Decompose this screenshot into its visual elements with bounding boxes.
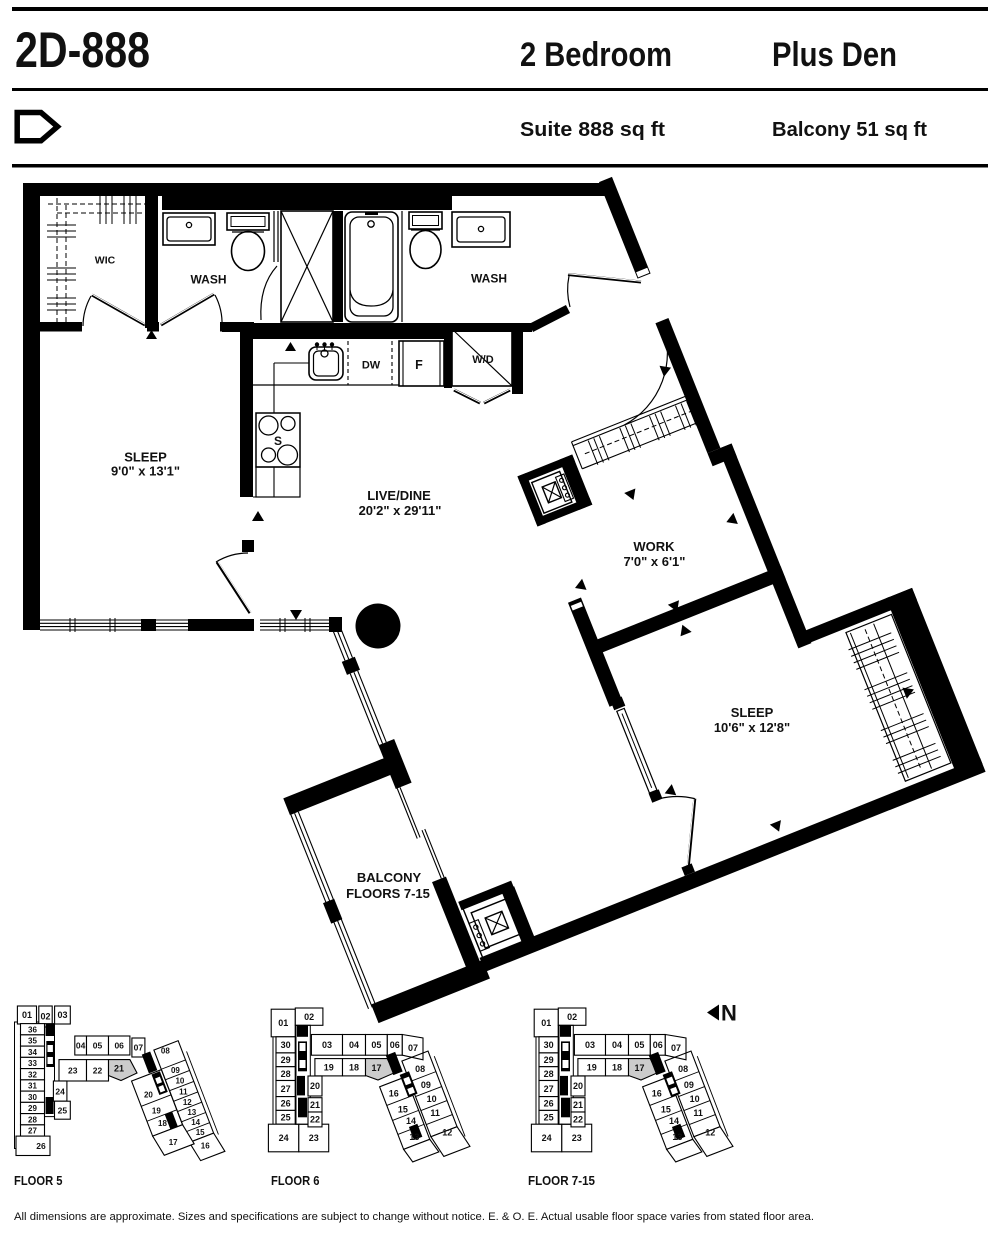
svg-text:06: 06 — [653, 1040, 663, 1050]
svg-text:15: 15 — [398, 1105, 408, 1115]
svg-text:34: 34 — [28, 1048, 37, 1057]
svg-text:18: 18 — [158, 1119, 167, 1128]
svg-text:16: 16 — [201, 1142, 210, 1151]
svg-text:26: 26 — [281, 1099, 291, 1109]
svg-text:Plus Den: Plus Den — [772, 36, 897, 74]
svg-text:28: 28 — [281, 1069, 291, 1079]
svg-text:25: 25 — [58, 1105, 68, 1115]
svg-text:20: 20 — [573, 1081, 583, 1091]
svg-text:24: 24 — [279, 1133, 289, 1143]
svg-text:30: 30 — [281, 1040, 291, 1050]
svg-text:19: 19 — [324, 1062, 334, 1072]
svg-text:22: 22 — [573, 1115, 583, 1125]
svg-text:32: 32 — [28, 1070, 37, 1079]
svg-text:All dimensions are approximate: All dimensions are approximate. Sizes an… — [14, 1211, 814, 1223]
svg-text:30: 30 — [544, 1040, 554, 1050]
svg-text:28: 28 — [544, 1069, 554, 1079]
svg-text:10: 10 — [690, 1094, 700, 1104]
svg-text:18: 18 — [349, 1062, 359, 1072]
svg-text:Suite 888 sq ft: Suite 888 sq ft — [520, 119, 665, 141]
svg-text:09: 09 — [171, 1066, 180, 1075]
svg-text:7'0" x 6'1": 7'0" x 6'1" — [624, 554, 686, 569]
svg-text:LIVE/DINE: LIVE/DINE — [367, 488, 431, 503]
svg-text:09: 09 — [421, 1080, 431, 1090]
svg-text:21: 21 — [573, 1100, 583, 1110]
svg-text:2D-888: 2D-888 — [15, 22, 150, 78]
svg-text:05: 05 — [634, 1040, 644, 1050]
svg-text:07: 07 — [408, 1043, 418, 1053]
svg-text:21: 21 — [310, 1100, 320, 1110]
svg-text:27: 27 — [28, 1127, 37, 1136]
svg-text:23: 23 — [572, 1133, 582, 1143]
svg-text:14: 14 — [669, 1116, 679, 1126]
svg-text:01: 01 — [22, 1010, 32, 1020]
svg-text:27: 27 — [281, 1084, 291, 1094]
svg-text:02: 02 — [567, 1012, 577, 1022]
svg-text:25: 25 — [544, 1113, 554, 1123]
svg-text:03: 03 — [322, 1040, 332, 1050]
svg-text:21: 21 — [114, 1064, 124, 1074]
svg-text:04: 04 — [612, 1040, 622, 1050]
svg-text:FLOOR 7-15: FLOOR 7-15 — [528, 1173, 595, 1188]
svg-text:22: 22 — [310, 1115, 320, 1125]
svg-text:20: 20 — [144, 1091, 153, 1100]
svg-text:08: 08 — [415, 1064, 425, 1074]
svg-text:25: 25 — [281, 1113, 291, 1123]
svg-text:02: 02 — [40, 1012, 50, 1022]
svg-text:11: 11 — [430, 1108, 440, 1118]
svg-text:16: 16 — [652, 1088, 662, 1098]
svg-text:03: 03 — [585, 1040, 595, 1050]
svg-text:13: 13 — [672, 1132, 682, 1142]
svg-text:11: 11 — [693, 1108, 703, 1118]
svg-text:05: 05 — [93, 1041, 103, 1051]
svg-text:WASH: WASH — [191, 273, 227, 287]
svg-text:19: 19 — [152, 1106, 161, 1115]
svg-text:24: 24 — [542, 1133, 552, 1143]
svg-text:15: 15 — [196, 1128, 205, 1137]
svg-text:03: 03 — [57, 1010, 67, 1020]
svg-text:2 Bedroom: 2 Bedroom — [520, 36, 672, 74]
svg-text:12: 12 — [183, 1098, 192, 1107]
svg-text:17: 17 — [634, 1063, 644, 1073]
svg-text:09: 09 — [684, 1080, 694, 1090]
svg-text:33: 33 — [28, 1059, 37, 1068]
svg-text:DW: DW — [362, 360, 381, 372]
svg-text:13: 13 — [409, 1132, 419, 1142]
svg-text:FLOORS 7-15: FLOORS 7-15 — [346, 886, 430, 901]
svg-text:07: 07 — [134, 1043, 144, 1053]
svg-text:W/D: W/D — [472, 354, 493, 366]
svg-text:31: 31 — [28, 1082, 37, 1091]
svg-text:23: 23 — [68, 1066, 78, 1076]
svg-text:14: 14 — [191, 1118, 200, 1127]
svg-text:04: 04 — [76, 1041, 86, 1051]
svg-text:Balcony 51 sq ft: Balcony 51 sq ft — [772, 119, 927, 141]
svg-text:29: 29 — [281, 1055, 291, 1065]
svg-text:01: 01 — [541, 1018, 551, 1028]
svg-text:WORK: WORK — [633, 539, 675, 554]
svg-text:N: N — [721, 1001, 737, 1026]
svg-text:13: 13 — [187, 1108, 196, 1117]
svg-text:9'0" x 13'1": 9'0" x 13'1" — [111, 464, 180, 479]
svg-text:02: 02 — [304, 1012, 314, 1022]
svg-text:29: 29 — [544, 1055, 554, 1065]
svg-text:35: 35 — [28, 1037, 37, 1046]
svg-text:07: 07 — [671, 1043, 681, 1053]
svg-text:18: 18 — [612, 1062, 622, 1072]
svg-text:36: 36 — [28, 1025, 37, 1034]
svg-text:15: 15 — [661, 1105, 671, 1115]
svg-text:20: 20 — [310, 1081, 320, 1091]
svg-text:26: 26 — [544, 1099, 554, 1109]
svg-text:29: 29 — [28, 1104, 37, 1113]
svg-text:20'2" x 29'11": 20'2" x 29'11" — [359, 503, 442, 518]
svg-text:06: 06 — [390, 1040, 400, 1050]
svg-text:17: 17 — [169, 1138, 178, 1147]
svg-text:22: 22 — [93, 1066, 103, 1076]
svg-text:28: 28 — [28, 1115, 37, 1124]
svg-text:04: 04 — [349, 1040, 359, 1050]
svg-text:SLEEP: SLEEP — [731, 705, 774, 720]
svg-text:10: 10 — [175, 1076, 184, 1085]
svg-text:26: 26 — [36, 1141, 46, 1151]
svg-text:27: 27 — [544, 1084, 554, 1094]
svg-text:BALCONY: BALCONY — [357, 870, 422, 885]
svg-text:30: 30 — [28, 1093, 37, 1102]
svg-text:12: 12 — [705, 1128, 715, 1138]
svg-text:08: 08 — [161, 1047, 170, 1056]
svg-text:FLOOR 6: FLOOR 6 — [271, 1173, 320, 1188]
svg-text:19: 19 — [587, 1062, 597, 1072]
svg-text:11: 11 — [179, 1088, 188, 1097]
svg-text:S: S — [274, 434, 282, 448]
svg-text:WIC: WIC — [95, 255, 116, 267]
svg-text:12: 12 — [442, 1128, 452, 1138]
svg-text:10'6" x 12'8": 10'6" x 12'8" — [714, 720, 790, 735]
svg-text:14: 14 — [406, 1116, 416, 1126]
svg-text:FLOOR 5: FLOOR 5 — [14, 1173, 63, 1188]
svg-text:05: 05 — [371, 1040, 381, 1050]
svg-text:WASH: WASH — [471, 272, 507, 286]
svg-text:23: 23 — [309, 1133, 319, 1143]
svg-text:SLEEP: SLEEP — [124, 450, 167, 465]
svg-text:01: 01 — [278, 1018, 288, 1028]
svg-text:10: 10 — [427, 1094, 437, 1104]
svg-text:24: 24 — [55, 1086, 65, 1096]
svg-text:17: 17 — [371, 1063, 381, 1073]
svg-text:16: 16 — [389, 1088, 399, 1098]
svg-text:F: F — [415, 358, 423, 372]
svg-text:06: 06 — [114, 1041, 124, 1051]
svg-text:08: 08 — [678, 1064, 688, 1074]
